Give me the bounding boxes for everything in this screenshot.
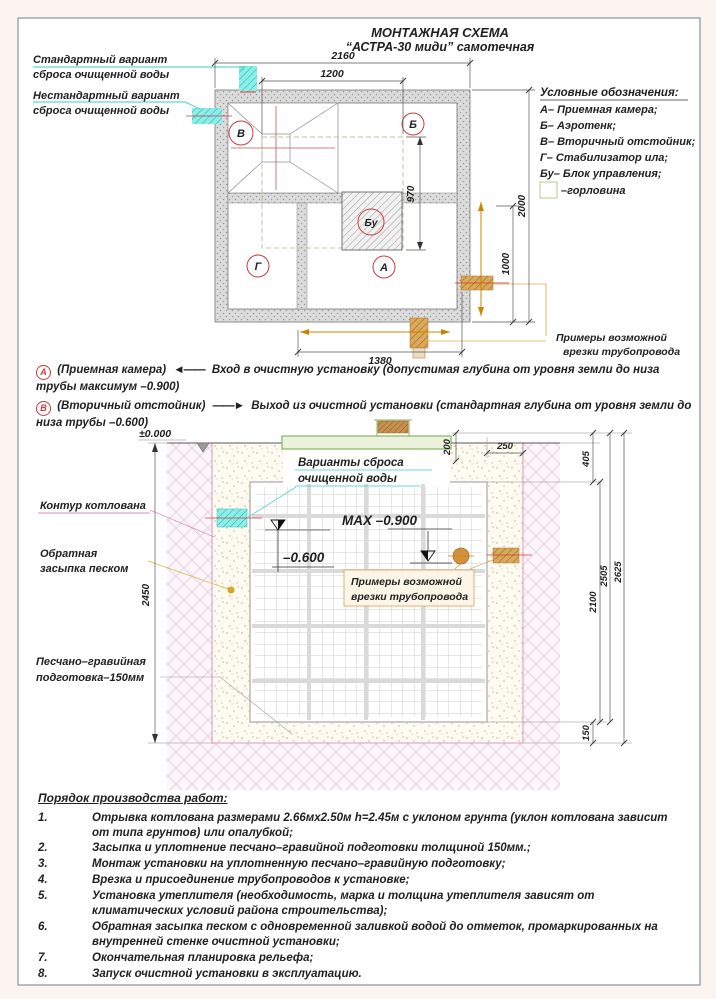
legend-neck-symbol — [540, 182, 557, 198]
section-lid — [282, 436, 451, 449]
plan-pipe-note: Примеры возможной — [556, 332, 668, 344]
svg-text:Обратная: Обратная — [40, 548, 98, 560]
svg-text:2450: 2450 — [141, 583, 152, 607]
dim-1000: 1000 — [501, 252, 512, 275]
svg-text:Контур котлована: Контур котлована — [40, 500, 146, 512]
svg-text:очищенной воды: очищенной воды — [298, 473, 397, 485]
svg-text:Примеры возможной: Примеры возможной — [351, 576, 463, 588]
svg-text:врезки трубопровода: врезки трубопровода — [351, 591, 468, 603]
zero-level-label: ±0.000 — [139, 428, 171, 440]
legend-title: Условные обозначения: — [540, 87, 679, 99]
svg-text:сброса очищенной воды: сброса очищенной воды — [33, 69, 170, 81]
legend-item-a: А– Приемная камера; — [539, 104, 658, 116]
dim-1200: 1200 — [320, 68, 344, 80]
dim-2100: 2100 — [588, 591, 599, 614]
svg-text:Песчано–гравийная: Песчано–гравийная — [36, 656, 146, 668]
dim-250: 250 — [496, 441, 514, 452]
mark-a: А — [379, 262, 388, 274]
dim-1380: 1380 — [368, 355, 392, 367]
svg-text:подготовка–150мм: подготовка–150мм — [36, 672, 144, 684]
nonstandard-discharge-label: Нестандартный вариант — [33, 90, 180, 102]
dim-405: 405 — [581, 450, 592, 468]
legend-item-bu: Бу– Блок управления; — [540, 168, 662, 180]
svg-text:врезки трубопровода: врезки трубопровода — [563, 346, 680, 358]
drawing-subtitle: “АСТРА-30 миди” самотечная — [346, 40, 535, 54]
drawing-title: МОНТАЖНАЯ СХЕМА — [371, 25, 509, 40]
dim-2160: 2160 — [330, 50, 355, 62]
dim-2000: 2000 — [517, 194, 528, 218]
svg-text:MAX –0.900: MAX –0.900 — [342, 513, 418, 528]
svg-text:сброса очищенной воды: сброса очищенной воды — [33, 105, 170, 117]
svg-text:засыпка песком: засыпка песком — [40, 563, 128, 575]
mark-b: Б — [409, 119, 417, 131]
plan-partition-vertical — [297, 203, 307, 309]
dim-200: 200 — [442, 438, 453, 456]
legend-item-neck: –горловина — [561, 185, 626, 197]
dim-970: 970 — [406, 185, 417, 202]
plan-pipe-bottom — [410, 318, 428, 348]
dim-2625: 2625 — [613, 561, 624, 584]
svg-text:–0.600: –0.600 — [283, 550, 325, 565]
standard-discharge-label: Стандартный вариант — [33, 54, 168, 66]
drawing-sheet: МОНТАЖНАЯ СХЕМА “АСТРА-30 миди” самотечн… — [0, 0, 716, 999]
dim-2505: 2505 — [599, 565, 610, 588]
mark-v: В — [237, 128, 245, 140]
plan-clarifier-envelope — [228, 103, 338, 193]
legend-item-v: В– Вторичный отстойник; — [540, 136, 696, 148]
section-discharge-label: Варианты сброса — [298, 457, 404, 469]
legend-item-g: Г– Стабилизатор ила; — [540, 152, 668, 164]
legend-item-b: Б– Аэротенк; — [540, 120, 616, 132]
montage-scheme-drawing: МОНТАЖНАЯ СХЕМА “АСТРА-30 миди” самотечн… — [0, 0, 716, 999]
mark-bu: Бу — [364, 217, 378, 229]
section-pipe-right — [493, 548, 519, 563]
standard-discharge-pipe — [239, 66, 257, 91]
dim-150: 150 — [581, 724, 592, 741]
